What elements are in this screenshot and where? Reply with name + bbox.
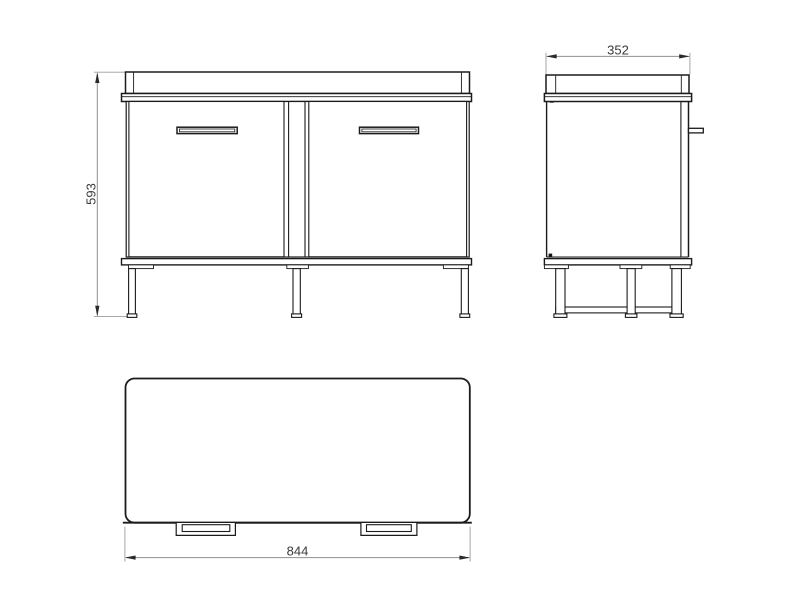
front-left-handle-outer [177, 127, 237, 133]
side-front-foot [670, 314, 683, 318]
front-left-leg-plate [129, 265, 154, 269]
front-right-door [309, 102, 467, 257]
front-top-rim [126, 72, 470, 94]
width-arrow-right-icon [459, 555, 470, 559]
front-center-foot [292, 314, 302, 318]
side-front-leg-plate [670, 265, 690, 269]
front-right-handle-outer [360, 127, 419, 133]
front-left-door [129, 102, 284, 257]
side-top-rim [546, 75, 689, 94]
side-middle-leg-plate [620, 265, 642, 269]
side-rear-leg [556, 269, 565, 315]
front-center-leg [293, 269, 300, 315]
front-countertop [122, 94, 472, 102]
side-middle-foot [625, 314, 637, 318]
side-countertop [544, 94, 691, 102]
height-arrow-up-icon [95, 72, 99, 83]
side-rear-foot [554, 314, 567, 318]
front-left-door-handle [177, 127, 237, 133]
front-right-door-handle [360, 127, 419, 133]
depth-dimension-label: 352 [607, 43, 629, 58]
height-dimension: 593 [84, 72, 129, 316]
side-fixing-dot-bottom [549, 254, 553, 258]
side-cross-brace [556, 307, 682, 313]
side-door-handle [689, 128, 704, 133]
plan-right-door-handle [361, 523, 417, 535]
height-dimension-label: 593 [84, 183, 99, 205]
front-center-leg-plate [287, 265, 309, 269]
depth-dimension: 352 [546, 43, 690, 75]
plan-view: 844 [123, 379, 472, 562]
technical-drawing-canvas: 593 [0, 0, 800, 600]
side-bottom-rail [544, 259, 691, 265]
side-middle-leg [627, 269, 635, 315]
side-front-leg [672, 269, 682, 315]
front-right-leg [461, 269, 468, 315]
front-right-foot [460, 314, 470, 318]
height-arrow-down-icon [95, 306, 99, 317]
depth-arrow-right-icon [679, 54, 690, 58]
front-left-foot [127, 314, 137, 318]
plan-countertop-outline [126, 379, 470, 523]
width-dimension-label: 844 [287, 544, 309, 559]
depth-arrow-left-icon [546, 54, 557, 58]
front-bottom-rail [122, 259, 472, 265]
plan-left-door-handle [176, 523, 235, 535]
side-rear-leg-plate [544, 265, 568, 269]
side-view: 352 [544, 43, 703, 318]
front-left-leg [129, 269, 136, 315]
front-view: 593 [84, 72, 472, 317]
front-right-leg-plate [443, 265, 468, 269]
width-arrow-left-icon [125, 555, 136, 559]
